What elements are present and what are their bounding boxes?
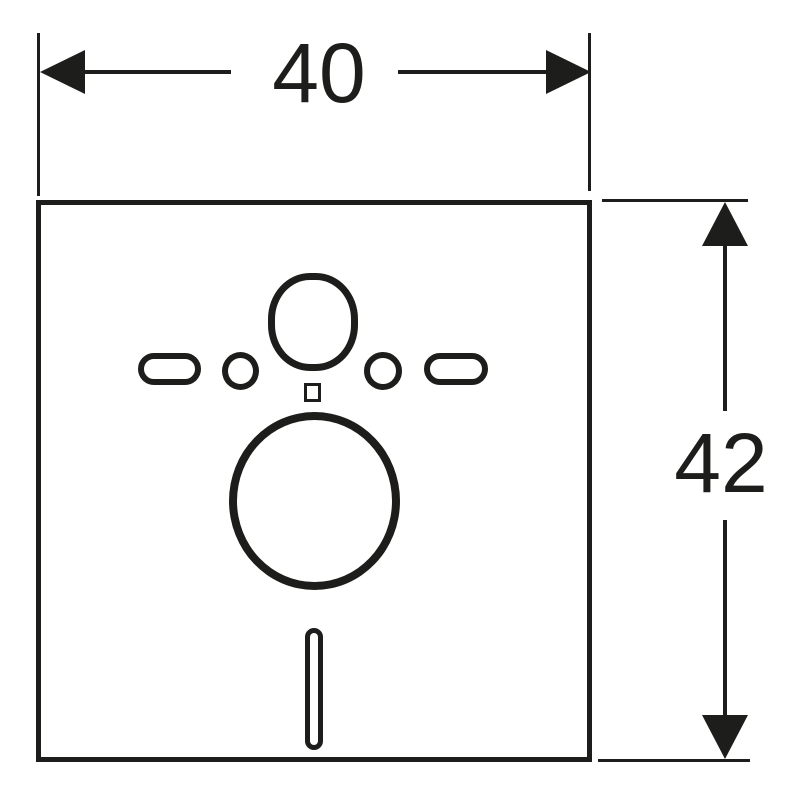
arrowhead-up-icon: [702, 202, 748, 246]
width-dimension-line-left: [84, 70, 231, 74]
large-round-hole: [229, 412, 400, 590]
width-dimension-label: 40: [272, 31, 365, 115]
small-square-hole: [304, 383, 321, 402]
height-dimension-label: 42: [674, 421, 767, 505]
height-dimension-line-top: [723, 245, 727, 411]
height-extension-line-bottom: [598, 759, 750, 762]
right-round-hole: [364, 352, 402, 390]
right-slot: [424, 353, 488, 385]
width-dimension-line-right: [398, 70, 546, 74]
bottom-vertical-slot: [305, 628, 323, 750]
top-round-hole: [268, 273, 358, 371]
arrowhead-right-icon: [546, 50, 591, 94]
left-round-hole: [222, 352, 259, 390]
left-slot: [138, 353, 201, 385]
height-dimension-line-bottom: [723, 520, 727, 715]
technical-drawing-canvas: 40 42: [0, 0, 800, 800]
arrowhead-down-icon: [702, 715, 748, 759]
arrowhead-left-icon: [40, 50, 85, 94]
